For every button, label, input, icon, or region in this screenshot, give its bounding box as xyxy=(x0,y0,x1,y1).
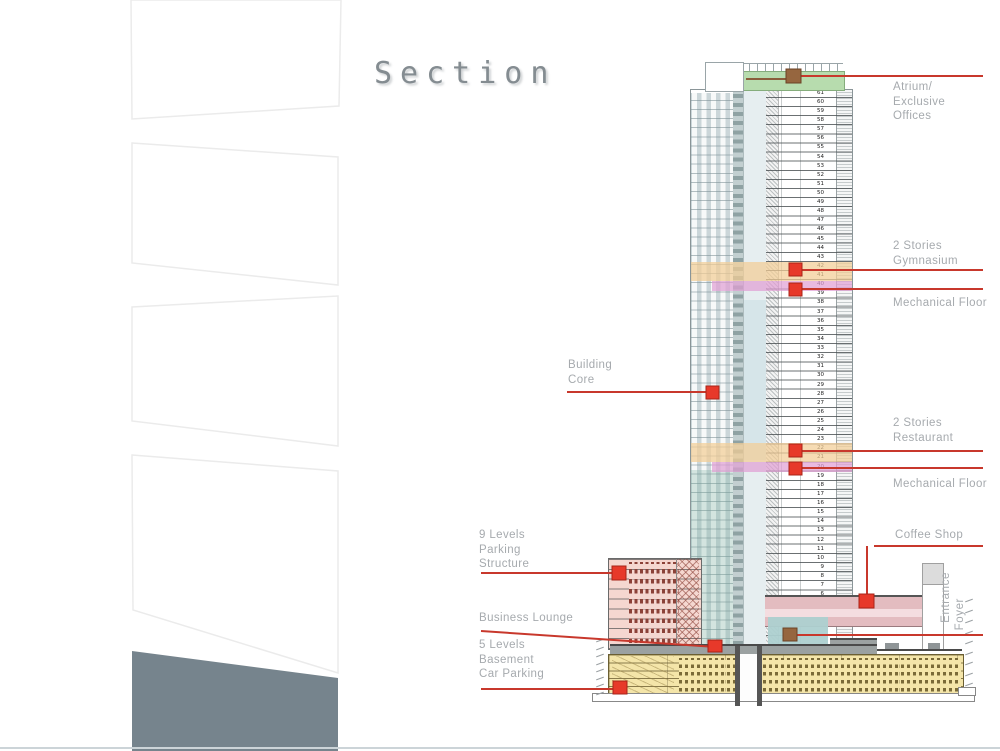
label-mechanical-upper: Mechanical Floor xyxy=(893,296,987,311)
presentation-page: Section 61605958575655545352515049484746… xyxy=(0,0,1000,751)
marker-basement xyxy=(613,681,627,694)
marker-mechanical-upper xyxy=(789,283,802,296)
marker-gymnasium xyxy=(789,263,802,276)
marker-parking xyxy=(612,566,626,580)
label-basement-parking: 5 Levels Basement Car Parking xyxy=(479,638,544,682)
label-atrium: Atrium/ Exclusive Offices xyxy=(893,80,945,124)
label-entrance-foyer-line2: Foyer xyxy=(954,598,966,630)
marker-atrium xyxy=(786,69,801,83)
marker-entrance-foyer xyxy=(783,628,797,641)
label-coffee-shop: Coffee Shop xyxy=(895,528,963,543)
marker-business-lounge xyxy=(708,640,722,652)
label-parking-structure: 9 Levels Parking Structure xyxy=(479,528,529,572)
marker-mechanical-lower xyxy=(789,462,802,475)
label-gymnasium: 2 Stories Gymnasium xyxy=(893,239,958,268)
marker-coffee-shop xyxy=(859,594,874,608)
marker-restaurant xyxy=(789,444,802,457)
marker-building-core xyxy=(706,386,719,399)
label-business-lounge: Business Lounge xyxy=(479,611,573,626)
label-mechanical-lower: Mechanical Floor xyxy=(893,477,987,492)
label-entrance-foyer-line1: Entrance xyxy=(940,572,952,623)
label-restaurant: 2 Stories Restaurant xyxy=(893,416,953,445)
label-building-core: Building Core xyxy=(568,358,612,387)
